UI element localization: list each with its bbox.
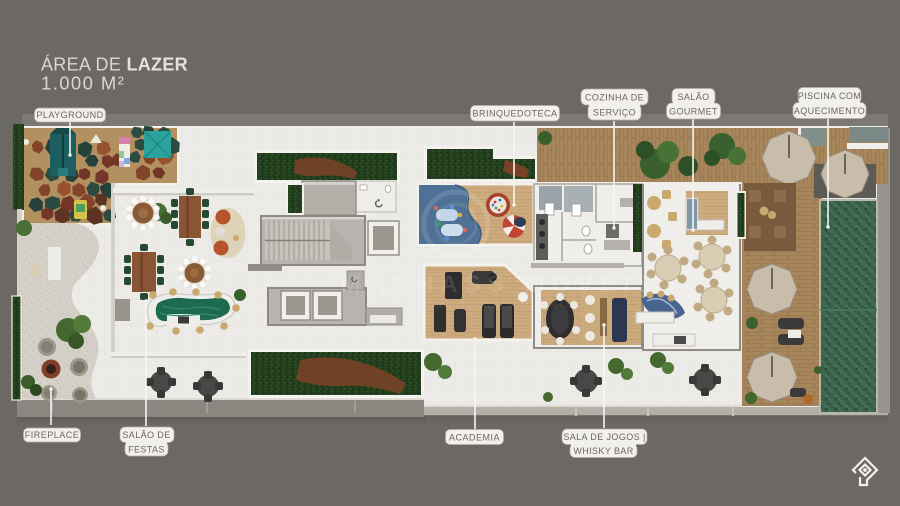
svg-text:SALÃO: SALÃO	[677, 92, 709, 102]
svg-text:PISCINA COM: PISCINA COM	[798, 91, 861, 101]
svg-text:SERVIÇO: SERVIÇO	[593, 108, 636, 118]
svg-text:PLAYGROUND: PLAYGROUND	[36, 110, 103, 120]
svg-text:ACADEMIA: ACADEMIA	[449, 433, 500, 443]
svg-text:Consultoria e Projetos: Consultoria e Projetos	[418, 300, 582, 311]
svg-text:WHISKY BAR: WHISKY BAR	[573, 446, 633, 456]
svg-text:ÁREA DE LAZER: ÁREA DE LAZER	[41, 55, 188, 75]
svg-text:1.000 M²: 1.000 M²	[41, 73, 125, 94]
svg-text:GOURMET: GOURMET	[669, 107, 718, 117]
svg-text:SALÃO DE: SALÃO DE	[122, 430, 170, 440]
svg-text:FIREPLACE: FIREPLACE	[25, 430, 80, 440]
svg-text:MANHASS MÓVEIS: MANHASS MÓVEIS	[340, 270, 659, 298]
svg-text:FESTAS: FESTAS	[128, 445, 165, 455]
svg-text:SALA DE JOGOS |: SALA DE JOGOS |	[563, 432, 645, 442]
svg-text:AQUECIMENTO: AQUECIMENTO	[794, 106, 865, 116]
svg-text:BRINQUEDOTECA: BRINQUEDOTECA	[472, 109, 557, 119]
svg-text:COZINHA DE: COZINHA DE	[585, 93, 644, 103]
